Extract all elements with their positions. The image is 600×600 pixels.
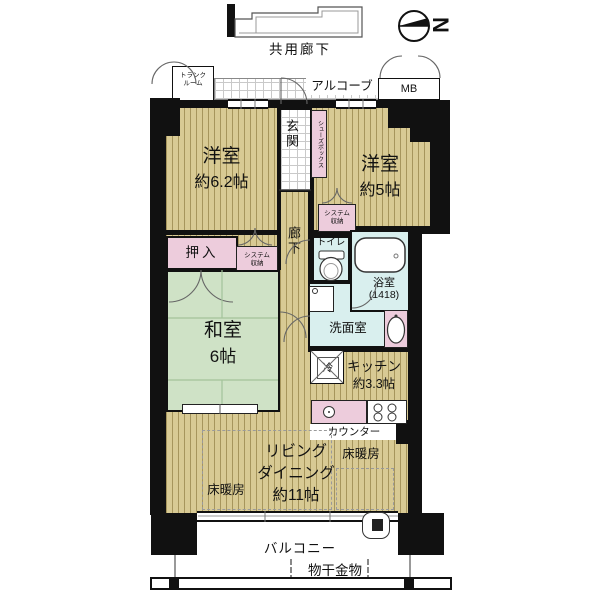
building-locator-map [227, 4, 362, 37]
kitchen-label: キッチン 約3.3帖 [338, 354, 410, 396]
entrance-label: 玄関 [282, 112, 299, 156]
wall-left [150, 100, 166, 515]
living-line1: リビング [265, 443, 327, 461]
wall-right-upper [430, 100, 450, 230]
compass-icon [399, 11, 429, 41]
trunk-room-label: トランク ルーム [172, 70, 214, 90]
living-line3: 約11帖 [272, 487, 319, 505]
system-storage-line2: 収納 [331, 218, 344, 226]
toilet-label: トイレ [312, 238, 350, 249]
rail-post-left [169, 577, 179, 590]
bathroom-label: 浴室 (1418) [360, 274, 408, 304]
bath-name: 浴室 [373, 277, 395, 290]
sliding-door-washitsu [182, 404, 258, 414]
kitchen-name: キッチン [347, 359, 401, 375]
hallway-label: 廊下 [284, 218, 301, 264]
bedroom-west-name: 洋室 [202, 146, 240, 168]
washitsu-label: 和室 6帖 [166, 310, 280, 376]
pillar-right [398, 513, 444, 555]
rail-post-right [404, 577, 414, 590]
kitchen-size: 約3.3帖 [353, 377, 395, 391]
pillar-left [151, 513, 197, 555]
oshiire-label: 押入 [166, 236, 238, 270]
trunk-room-line2: ルーム [183, 80, 202, 88]
kitchen-stove [367, 400, 407, 424]
window-bedroom-west [228, 99, 268, 109]
window-bedroom-east [336, 99, 376, 109]
floor-heating-label-left: 床暖房 [199, 483, 253, 498]
bedroom-east-label: 洋室 約5帖 [330, 146, 430, 208]
wall-notch-1 [388, 108, 432, 128]
floor-heating-label-right: 床暖房 [334, 447, 388, 462]
bath-size: (1418) [369, 289, 399, 301]
washbasin-cabinet [384, 310, 408, 348]
living-line2: ダイニング [257, 465, 335, 483]
shoe-box-label: シューズボックス [312, 111, 326, 177]
wall-right-lower [408, 226, 422, 517]
system-storage-line1: システム [324, 210, 350, 218]
meter-box-label: MB [378, 78, 440, 100]
wall-corner-tl [150, 98, 180, 136]
washing-machine-space [309, 286, 334, 312]
shared-corridor-label: 共用廊下 [252, 41, 348, 58]
bedroom-east-size: 約5帖 [360, 182, 401, 200]
refrigerator-label: 冷 [317, 357, 339, 379]
bedroom-east-name: 洋室 [361, 154, 399, 176]
alcove-label: アルコーブ [306, 77, 378, 95]
floor-plan: トランク ルーム アルコーブ MB 共用廊下 N 玄関 シューズボックス 洋室 … [0, 0, 600, 600]
washitsu-size: 6帖 [210, 347, 236, 367]
system-storage-line2: 収納 [251, 260, 264, 268]
bedroom-west-size: 約6.2帖 [194, 174, 248, 192]
wall-notch-2 [410, 128, 432, 142]
system-storage-line1: システム [244, 252, 270, 260]
washroom-label: 洗面室 [317, 320, 379, 336]
trunk-room-line1: トランク [180, 72, 206, 80]
system-storage-east-label: システム 収納 [318, 204, 356, 232]
balcony-label: バルコニー [248, 540, 352, 557]
compass-letter: N [426, 13, 454, 37]
wall-bedroomwest-bottom [166, 230, 280, 235]
kitchen-sink-counter [311, 400, 367, 424]
bedroom-west-label: 洋室 約6.2帖 [166, 138, 277, 200]
water-heater-glyph [372, 519, 383, 531]
washitsu-name: 和室 [204, 320, 242, 342]
wall-top [150, 100, 448, 108]
outside-area [422, 232, 460, 517]
